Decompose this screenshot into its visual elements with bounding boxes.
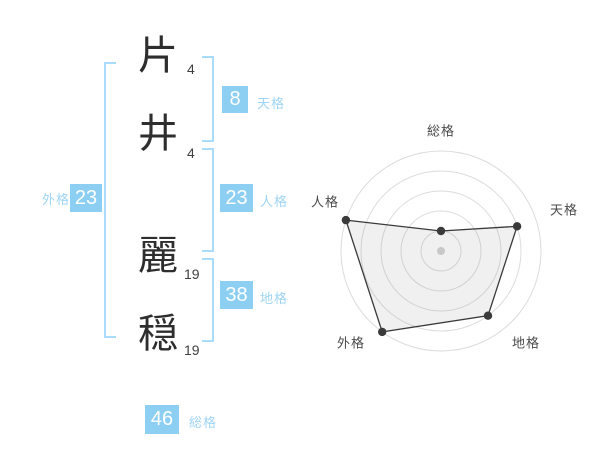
given-char-1-strokes: 19	[184, 266, 200, 282]
surname-char-2: 井	[128, 112, 188, 156]
gaikaku-bracket	[104, 62, 116, 338]
radar-data-point	[342, 216, 350, 224]
chikaku-label: 地格	[260, 288, 288, 307]
jinkaku-value-badge: 23	[220, 184, 253, 212]
tenkaku-bracket	[202, 56, 214, 142]
radar-data-point	[437, 227, 445, 235]
given-char-2: 穏	[128, 312, 188, 356]
chikaku-bracket	[202, 258, 214, 342]
surname-char-1-strokes: 4	[187, 61, 195, 77]
gaikaku-value-badge: 23	[70, 184, 102, 212]
radar-axis-jinkaku: 人格	[311, 192, 339, 211]
radar-data-point	[484, 312, 492, 320]
soukaku-value-badge: 46	[145, 405, 179, 434]
given-char-2-strokes: 19	[184, 342, 200, 358]
surname-char-1: 片	[128, 34, 188, 78]
chikaku-value-badge: 38	[220, 281, 253, 309]
radar-data-point	[513, 222, 521, 230]
radar-center-dot	[437, 247, 445, 255]
radar-axis-gaikaku: 外格	[337, 333, 365, 352]
jinkaku-label: 人格	[260, 191, 288, 210]
fortune-radar-chart	[305, 110, 595, 370]
given-char-1: 麗	[128, 234, 188, 278]
radar-axis-chikaku: 地格	[512, 333, 540, 352]
name-analysis-panel: 外格 23 片 4 井 4 麗 19 穏 19 8 天格 23 人格 38 地格…	[0, 0, 600, 470]
radar-axis-soukaku: 総格	[427, 121, 455, 140]
radar-data-point	[378, 328, 386, 336]
tenkaku-label: 天格	[257, 93, 285, 112]
radar-axis-tenkaku: 天格	[550, 200, 578, 219]
jinkaku-bracket	[202, 148, 214, 252]
tenkaku-value-badge: 8	[222, 86, 248, 113]
surname-char-2-strokes: 4	[187, 145, 195, 161]
soukaku-label: 総格	[189, 412, 217, 431]
gaikaku-label: 外格	[42, 189, 70, 208]
